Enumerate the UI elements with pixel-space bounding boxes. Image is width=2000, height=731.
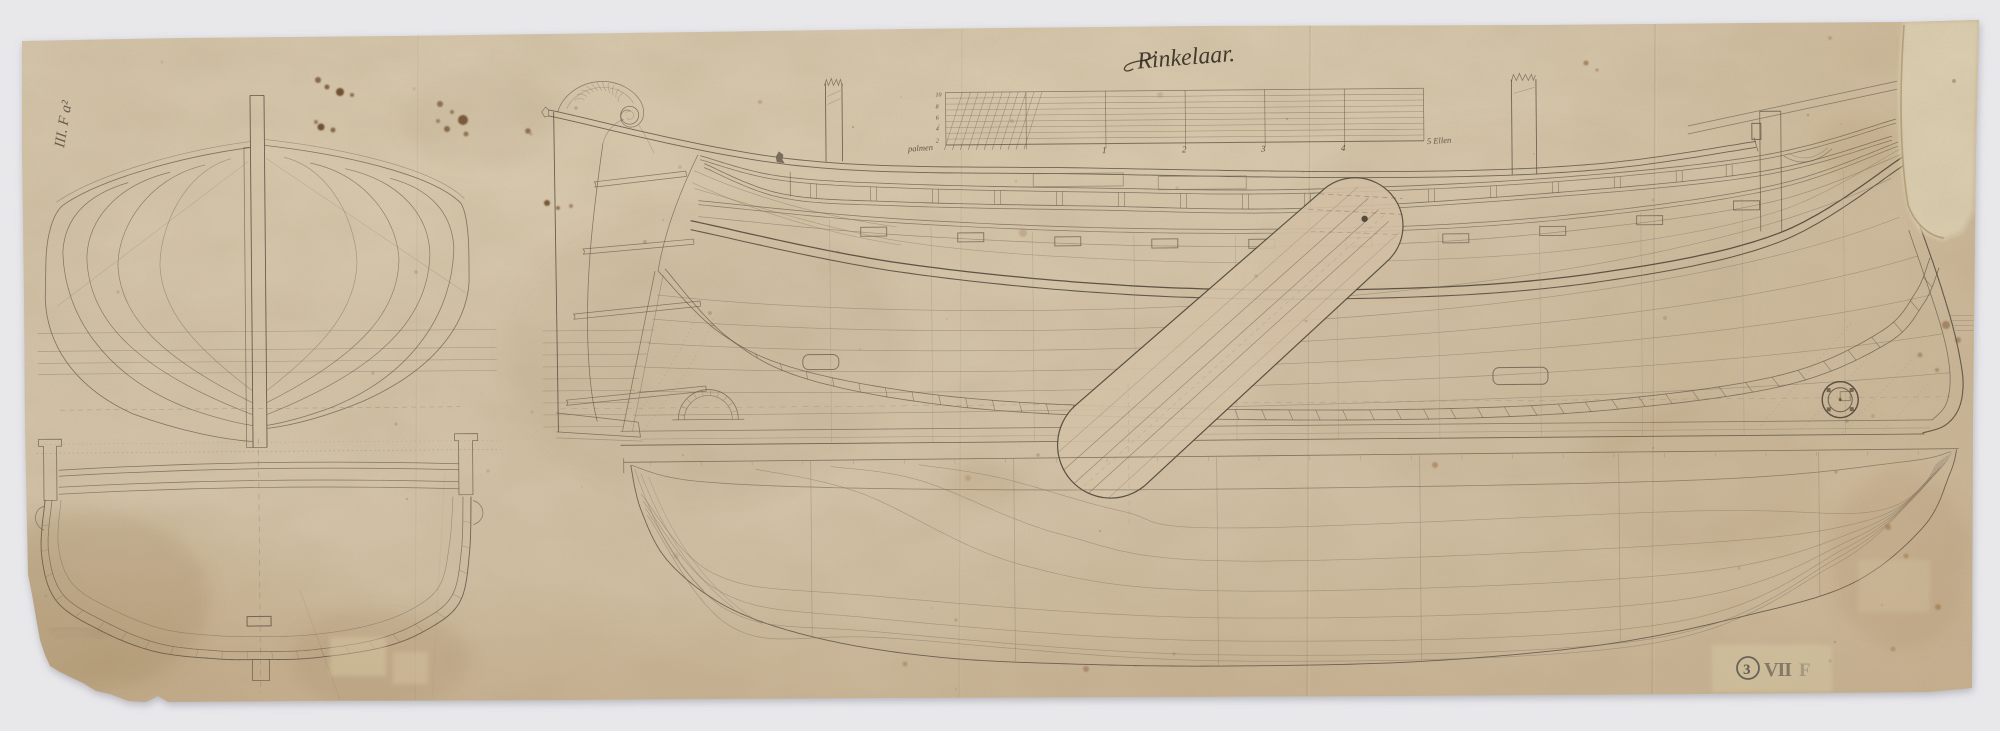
svg-text:2: 2 xyxy=(1182,144,1187,154)
svg-text:10: 10 xyxy=(935,92,941,98)
svg-text:6: 6 xyxy=(936,116,939,122)
svg-text:palmen: palmen xyxy=(907,142,934,154)
svg-text:1: 1 xyxy=(1102,145,1107,155)
svg-text:3: 3 xyxy=(1260,144,1266,154)
svg-text:4: 4 xyxy=(936,126,939,133)
svg-text:VII: VII xyxy=(1764,659,1792,681)
svg-text:F: F xyxy=(1799,660,1811,681)
svg-text:4: 4 xyxy=(1341,143,1346,153)
svg-text:2: 2 xyxy=(936,139,939,145)
svg-text:3: 3 xyxy=(1743,662,1751,678)
svg-text:8: 8 xyxy=(936,105,939,111)
